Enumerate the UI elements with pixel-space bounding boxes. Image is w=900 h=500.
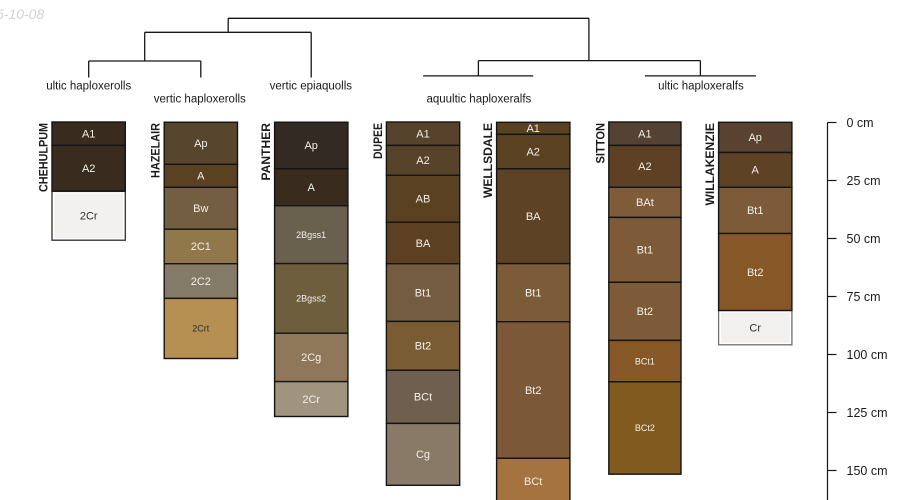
svg-text:BA: BA xyxy=(526,211,541,223)
svg-text:Ap: Ap xyxy=(304,140,317,152)
svg-text:A: A xyxy=(308,182,316,194)
svg-text:2Cr: 2Cr xyxy=(302,394,320,406)
svg-text:vertic haploxerolls: vertic haploxerolls xyxy=(154,94,246,106)
svg-text:Bt2: Bt2 xyxy=(637,306,654,318)
svg-text:A: A xyxy=(197,171,205,183)
svg-text:BCt1: BCt1 xyxy=(635,356,655,366)
svg-text:HAZELAIR: HAZELAIR xyxy=(149,123,163,178)
svg-text:AB: AB xyxy=(416,194,431,206)
svg-text:2Cg: 2Cg xyxy=(301,352,321,364)
svg-text:vertic epiaquolls: vertic epiaquolls xyxy=(270,81,353,93)
svg-text:2Crt: 2Crt xyxy=(192,324,210,334)
svg-text:A1: A1 xyxy=(82,129,95,141)
svg-text:75 cm: 75 cm xyxy=(847,290,881,304)
svg-text:Bt2: Bt2 xyxy=(525,385,542,397)
svg-text:CHEHULPUM: CHEHULPUM xyxy=(37,123,51,192)
svg-text:150 cm: 150 cm xyxy=(847,464,888,478)
svg-text:2C1: 2C1 xyxy=(191,241,211,253)
svg-text:Ap: Ap xyxy=(748,132,761,144)
svg-text:A2: A2 xyxy=(526,146,539,158)
svg-text:SITTON: SITTON xyxy=(593,123,607,164)
svg-text:ultic haploxerolls: ultic haploxerolls xyxy=(46,81,131,93)
svg-text:Bt1: Bt1 xyxy=(747,205,764,217)
svg-text:Bt1: Bt1 xyxy=(637,245,654,257)
svg-text:2Bgss2: 2Bgss2 xyxy=(296,294,326,304)
svg-text:ultic haploxeralfs: ultic haploxeralfs xyxy=(658,81,744,93)
svg-text:PANTHER: PANTHER xyxy=(259,123,273,181)
svg-text:A2: A2 xyxy=(638,161,651,173)
svg-text:A1: A1 xyxy=(526,123,539,135)
svg-text:BCt2: BCt2 xyxy=(635,423,655,433)
svg-text:100 cm: 100 cm xyxy=(847,348,888,362)
svg-text:2Bgss1: 2Bgss1 xyxy=(296,230,326,240)
svg-text:Bt1: Bt1 xyxy=(415,287,432,299)
svg-text:25 cm: 25 cm xyxy=(847,174,881,188)
svg-text:Cg: Cg xyxy=(416,449,430,461)
svg-text:A2: A2 xyxy=(416,155,429,167)
svg-text:2Cr: 2Cr xyxy=(80,211,98,223)
svg-text:0 cm: 0 cm xyxy=(847,116,874,130)
svg-text:BA: BA xyxy=(416,238,431,250)
svg-text:WILLAKENZIE: WILLAKENZIE xyxy=(703,123,717,206)
svg-text:Ap: Ap xyxy=(194,138,207,150)
svg-text:Bt2: Bt2 xyxy=(415,341,432,353)
svg-text:5-10-08: 5-10-08 xyxy=(0,6,44,22)
svg-text:Bw: Bw xyxy=(193,203,208,215)
svg-text:50 cm: 50 cm xyxy=(847,232,881,246)
svg-text:aquultic haploxeralfs: aquultic haploxeralfs xyxy=(426,94,531,106)
svg-text:A1: A1 xyxy=(638,129,651,141)
svg-text:Bt2: Bt2 xyxy=(747,267,764,279)
svg-text:BCt: BCt xyxy=(414,392,432,404)
svg-text:BCt: BCt xyxy=(524,476,542,488)
svg-text:A2: A2 xyxy=(82,163,95,175)
svg-text:A1: A1 xyxy=(416,129,429,141)
svg-text:Cr: Cr xyxy=(749,322,761,334)
svg-text:Bt1: Bt1 xyxy=(525,287,542,299)
svg-text:125 cm: 125 cm xyxy=(847,406,888,420)
svg-text:DUPEE: DUPEE xyxy=(371,123,385,159)
svg-text:BAt: BAt xyxy=(636,197,654,209)
svg-text:2C2: 2C2 xyxy=(191,276,211,288)
svg-text:WELLSDALE: WELLSDALE xyxy=(481,123,495,198)
svg-text:A: A xyxy=(752,165,760,177)
